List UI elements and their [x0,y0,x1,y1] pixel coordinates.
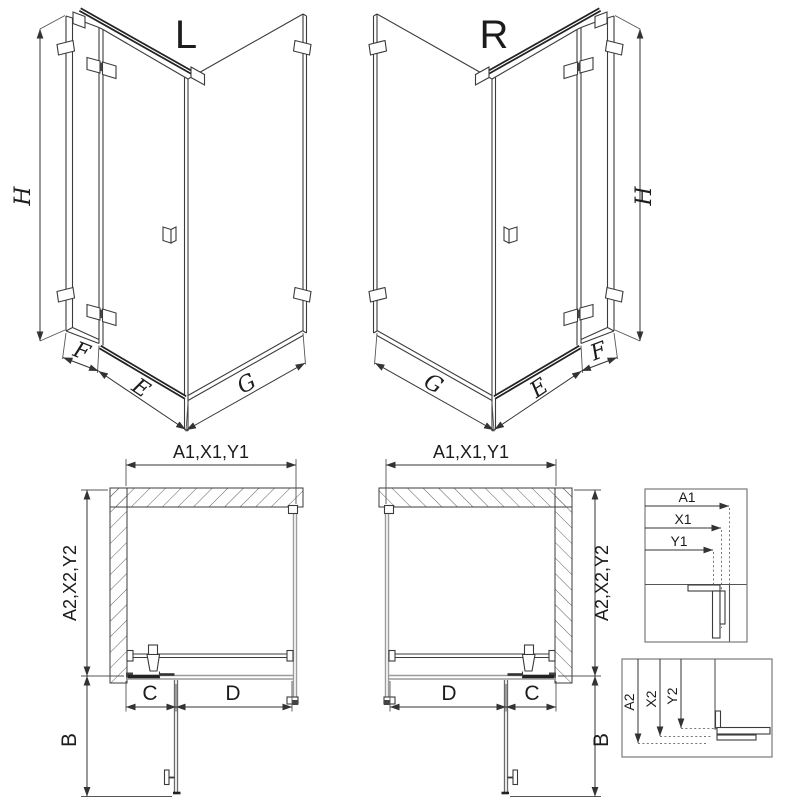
dim-label-g-left: G [233,369,260,399]
dim-label-b-left: B [58,733,81,747]
wall-profile-section [645,585,747,642]
dim-label-g-right: G [419,369,446,399]
detail-label-y2: Y2 [664,687,680,704]
dim-label-c-right: C [524,682,539,705]
dim-label-f-right: F [586,337,611,366]
door-handle [163,227,176,243]
open-door-plan [160,672,181,794]
detail-label-a2: A2 [621,693,637,710]
iso-view-right-geometry [369,10,640,432]
detail-label-y1: Y1 [670,533,687,549]
support-bar-plan [127,645,293,671]
dim-label-h-right: H [632,186,657,207]
dim-label-b-right: B [590,733,613,747]
iso-view-left-geometry [40,10,311,432]
front-sill-plan [126,673,293,680]
dim-label-a1x1y1-left: A1,X1,Y1 [173,442,249,462]
detail-label-x2: X2 [643,690,659,707]
dim-label-f-left: F [69,337,94,366]
plan-view-right-geometry [379,459,601,797]
variant-label-right: R [480,13,509,57]
dim-label-h-left: H [11,186,36,207]
detail-label-a1: A1 [678,489,695,505]
plan-view-left-geometry [81,459,303,797]
dim-label-a2x2y2-left: A2,X2,Y2 [60,545,80,621]
dim-label-c-left: C [142,682,157,705]
detail-box-width [645,489,747,642]
iso-dimension-lines [40,16,306,432]
glass-panel-outlines [66,14,307,431]
detail-label-x1: X1 [674,511,691,527]
variant-label-left: L [175,13,197,57]
dim-label-a1x1y1-right: A1,X1,Y1 [433,442,509,462]
sill-profile-section [715,659,770,740]
diagram-canvas: L H F E G R H F E G A1,X1,Y1 A2,X2,Y2 C … [0,0,800,800]
technical-drawing-page: L H F E G R H F E G A1,X1,Y1 A2,X2,Y2 C … [0,0,800,800]
dim-label-d-right: D [441,682,456,705]
door-hinges [87,58,116,326]
dim-label-a2x2y2-right: A2,X2,Y2 [592,545,612,621]
dim-label-d-left: D [225,682,240,705]
